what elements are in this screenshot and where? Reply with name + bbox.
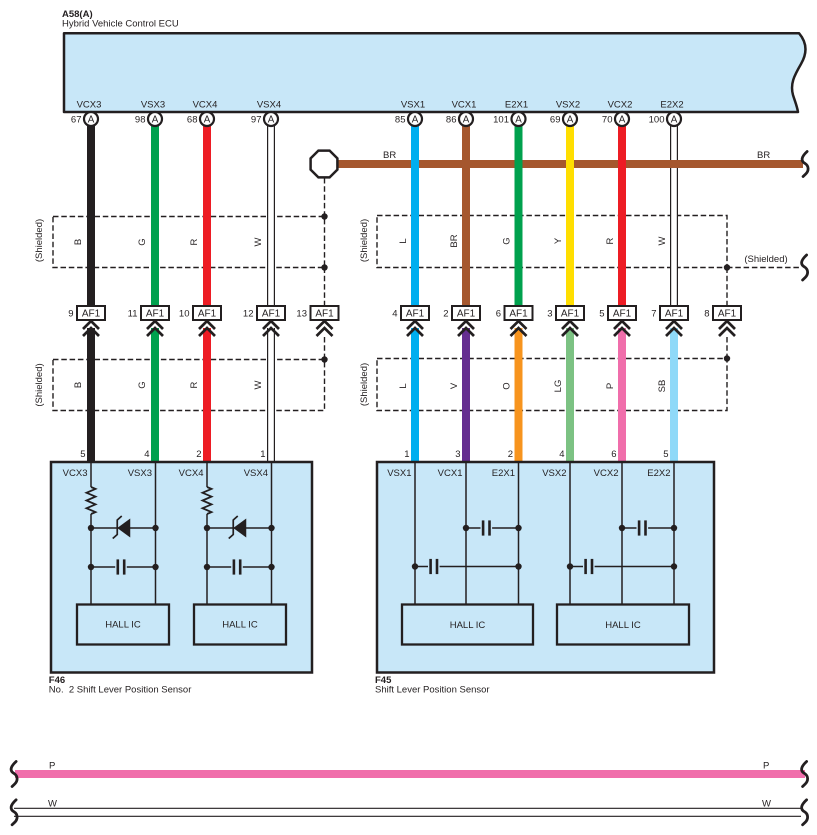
svg-text:8: 8 xyxy=(704,309,709,320)
svg-text:No. 2 Shift Lever Position Se: No. 2 Shift Lever Position Sensor xyxy=(49,685,192,696)
svg-text:(Shielded): (Shielded) xyxy=(34,219,45,262)
svg-text:A: A xyxy=(671,115,678,126)
svg-text:(Shielded): (Shielded) xyxy=(359,219,370,262)
svg-text:R: R xyxy=(605,237,616,244)
svg-text:LG: LG xyxy=(553,380,564,393)
svg-text:VSX3: VSX3 xyxy=(141,99,165,110)
svg-text:VSX4: VSX4 xyxy=(244,468,268,479)
svg-text:G: G xyxy=(137,238,148,245)
svg-text:W: W xyxy=(657,236,668,245)
svg-text:A: A xyxy=(152,115,159,126)
svg-text:G: G xyxy=(502,237,513,244)
svg-text:6: 6 xyxy=(496,309,501,320)
svg-text:1: 1 xyxy=(404,449,409,460)
svg-text:HALL IC: HALL IC xyxy=(105,620,141,631)
svg-text:10: 10 xyxy=(179,309,190,320)
svg-text:2: 2 xyxy=(508,449,513,460)
svg-text:AF1: AF1 xyxy=(315,309,334,320)
svg-text:11: 11 xyxy=(128,309,138,320)
svg-text:VSX1: VSX1 xyxy=(401,99,425,110)
svg-text:HALL IC: HALL IC xyxy=(222,620,258,631)
svg-text:101: 101 xyxy=(493,114,509,125)
svg-text:3: 3 xyxy=(547,309,552,320)
svg-text:7: 7 xyxy=(651,309,656,320)
svg-text:4: 4 xyxy=(144,449,149,460)
svg-text:(Shielded): (Shielded) xyxy=(34,363,45,406)
svg-text:3: 3 xyxy=(455,449,460,460)
svg-text:E2X1: E2X1 xyxy=(492,468,515,479)
svg-text:6: 6 xyxy=(611,449,616,460)
svg-text:A: A xyxy=(204,115,211,126)
svg-text:P: P xyxy=(49,760,55,771)
svg-text:5: 5 xyxy=(599,309,604,320)
svg-text:W: W xyxy=(253,380,264,389)
svg-text:97: 97 xyxy=(251,114,262,125)
svg-text:5: 5 xyxy=(80,449,85,460)
svg-text:HALL IC: HALL IC xyxy=(450,620,486,631)
svg-text:AF1: AF1 xyxy=(665,309,684,320)
svg-text:98: 98 xyxy=(135,114,146,125)
svg-text:A: A xyxy=(412,115,419,126)
svg-text:VCX1: VCX1 xyxy=(452,99,477,110)
svg-text:P: P xyxy=(605,383,616,389)
svg-text:W: W xyxy=(762,798,771,809)
svg-text:L: L xyxy=(398,238,409,243)
svg-text:86: 86 xyxy=(446,114,457,125)
svg-text:VCX2: VCX2 xyxy=(608,99,633,110)
svg-text:HALL IC: HALL IC xyxy=(605,620,641,631)
svg-text:A: A xyxy=(88,115,95,126)
svg-text:12: 12 xyxy=(243,309,254,320)
svg-text:BR: BR xyxy=(757,150,770,161)
svg-text:1: 1 xyxy=(260,449,265,460)
svg-text:(Shielded): (Shielded) xyxy=(359,363,370,406)
svg-text:Hybrid Vehicle Control ECU: Hybrid Vehicle Control ECU xyxy=(62,19,179,30)
svg-text:9: 9 xyxy=(68,309,73,320)
svg-text:AF1: AF1 xyxy=(198,309,217,320)
svg-text:5: 5 xyxy=(663,449,668,460)
svg-text:A: A xyxy=(515,115,522,126)
svg-text:2: 2 xyxy=(196,449,201,460)
svg-text:2: 2 xyxy=(443,309,448,320)
svg-text:B: B xyxy=(73,382,84,388)
svg-text:Y: Y xyxy=(553,237,564,244)
svg-text:R: R xyxy=(189,381,200,388)
svg-text:E2X2: E2X2 xyxy=(647,468,670,479)
svg-text:E2X1: E2X1 xyxy=(505,99,528,110)
svg-text:VSX3: VSX3 xyxy=(128,468,152,479)
svg-text:AF1: AF1 xyxy=(262,309,281,320)
svg-text:VSX1: VSX1 xyxy=(387,468,411,479)
svg-text:A: A xyxy=(619,115,626,126)
svg-text:W: W xyxy=(253,237,264,246)
svg-text:AF1: AF1 xyxy=(561,309,580,320)
svg-text:W: W xyxy=(48,798,57,809)
svg-text:VSX2: VSX2 xyxy=(556,99,580,110)
svg-text:A: A xyxy=(268,115,275,126)
svg-text:VSX2: VSX2 xyxy=(542,468,566,479)
svg-text:VCX3: VCX3 xyxy=(77,99,102,110)
svg-text:68: 68 xyxy=(187,114,198,125)
svg-text:69: 69 xyxy=(550,114,561,125)
svg-text:VCX1: VCX1 xyxy=(438,468,463,479)
svg-text:Shift Lever Position Sensor: Shift Lever Position Sensor xyxy=(375,685,490,696)
svg-text:BR: BR xyxy=(383,150,396,161)
svg-text:AF1: AF1 xyxy=(82,309,101,320)
svg-text:E2X2: E2X2 xyxy=(660,99,683,110)
svg-text:100: 100 xyxy=(649,114,665,125)
svg-text:BR: BR xyxy=(449,234,460,247)
svg-text:O: O xyxy=(502,382,513,389)
svg-text:AF1: AF1 xyxy=(406,309,425,320)
svg-text:67: 67 xyxy=(71,114,82,125)
svg-text:70: 70 xyxy=(602,114,613,125)
svg-text:85: 85 xyxy=(395,114,406,125)
svg-text:AF1: AF1 xyxy=(457,309,476,320)
svg-text:AF1: AF1 xyxy=(509,309,528,320)
svg-text:VCX4: VCX4 xyxy=(193,99,218,110)
svg-text:VCX2: VCX2 xyxy=(594,468,619,479)
svg-text:L: L xyxy=(398,383,409,388)
svg-text:G: G xyxy=(137,381,148,388)
svg-text:AF1: AF1 xyxy=(718,309,737,320)
svg-text:B: B xyxy=(73,239,84,245)
svg-text:13: 13 xyxy=(296,309,307,320)
svg-text:SB: SB xyxy=(657,380,668,393)
svg-text:A: A xyxy=(463,115,470,126)
svg-text:R: R xyxy=(189,238,200,245)
svg-text:P: P xyxy=(763,760,769,771)
svg-text:VSX4: VSX4 xyxy=(257,99,281,110)
svg-text:4: 4 xyxy=(392,309,397,320)
svg-text:AF1: AF1 xyxy=(613,309,632,320)
svg-text:VCX4: VCX4 xyxy=(179,468,204,479)
svg-text:(Shielded): (Shielded) xyxy=(744,254,787,265)
svg-text:A: A xyxy=(567,115,574,126)
svg-text:V: V xyxy=(449,382,460,389)
svg-text:VCX3: VCX3 xyxy=(63,468,88,479)
svg-text:AF1: AF1 xyxy=(146,309,165,320)
svg-text:4: 4 xyxy=(559,449,564,460)
